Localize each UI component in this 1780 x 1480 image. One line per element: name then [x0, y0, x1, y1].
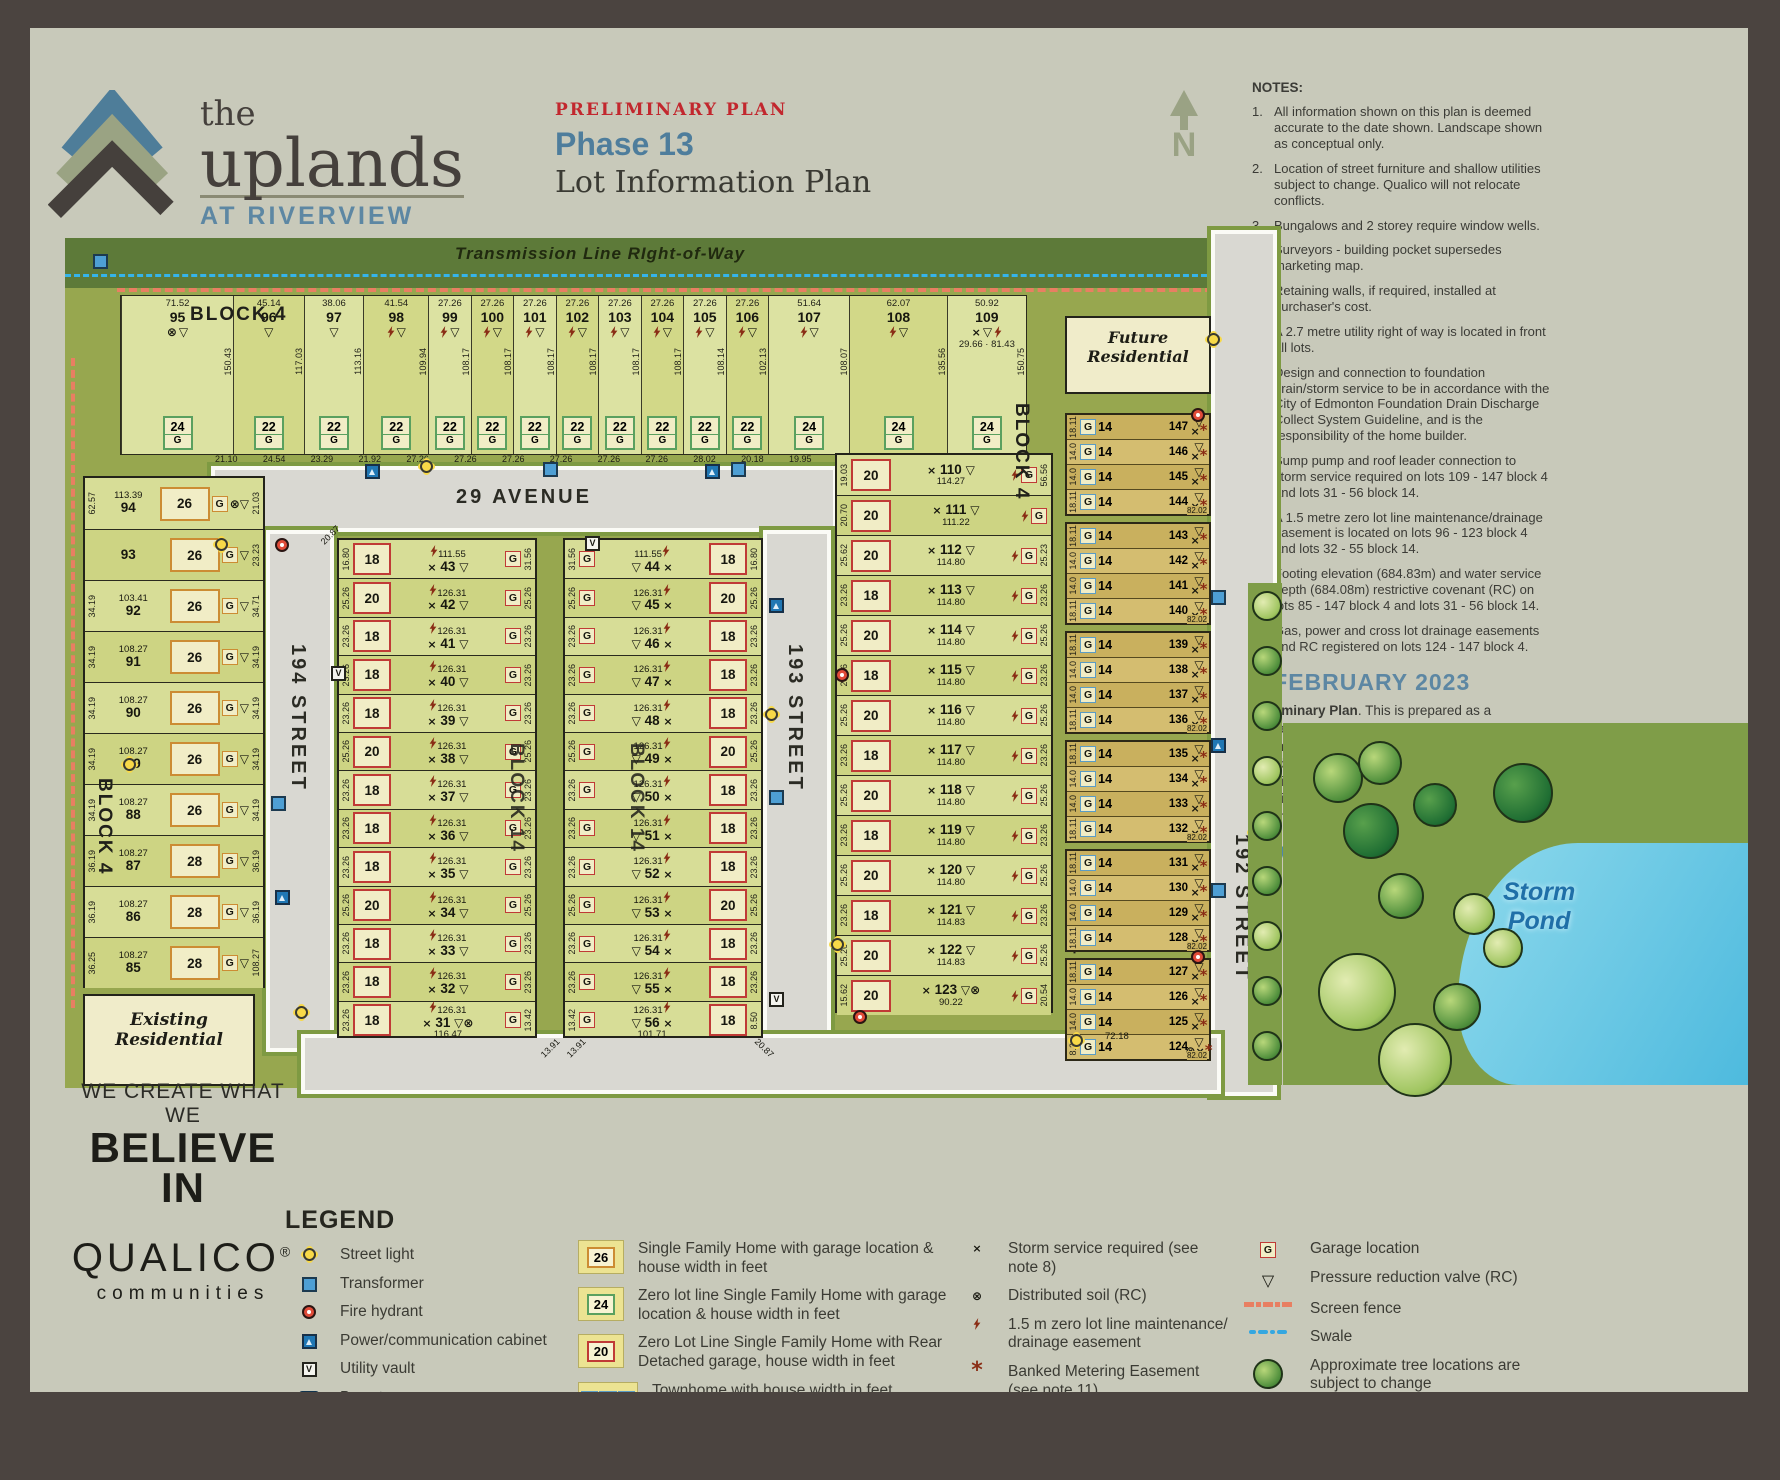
banked-metering-easement-icon: *	[1200, 530, 1208, 548]
arc-dimension: 27.26	[645, 454, 668, 464]
storm-service-icon: ×	[427, 715, 436, 728]
lot-141: 14.0G14141▽×*	[1067, 573, 1209, 598]
lot-depth-dim: 114.80	[893, 798, 1009, 808]
lot-dimension: 23.26	[341, 817, 351, 840]
lot-number: 140	[1169, 605, 1188, 617]
house-width: 14	[1098, 881, 1112, 895]
lot-dimension: 23.26	[341, 932, 351, 955]
legend-label: Swale	[1310, 1328, 1352, 1347]
lot-number: 44	[645, 559, 660, 574]
banked-metering-easement-icon: *	[1200, 471, 1208, 489]
lot-number: 118	[940, 782, 962, 797]
lot-54: 23.26G126.31▽ 54 ×1823.26	[565, 924, 761, 962]
zero-lot-line-easement-icon	[663, 584, 671, 596]
lot-dimension: 23.26	[567, 971, 577, 994]
house-footprint: 20	[851, 700, 891, 732]
lot-dimension: 14.0	[1068, 770, 1078, 788]
lot-depth-dim: 108.17	[588, 348, 598, 376]
lot-42: 25.2620126.31× 42 ▽G25.26	[339, 578, 535, 616]
lot-number: 92	[99, 604, 168, 618]
storm-service-icon: ×	[1190, 861, 1199, 874]
lot-depth-dim: 114.80	[893, 718, 1009, 728]
legend-item: Approximate tree locations are subject t…	[1240, 1357, 1540, 1392]
house-footprint: 20	[851, 980, 891, 1012]
power-cabinet-icon	[1211, 738, 1226, 753]
lot-86: 36.19108.278628G▽36.19	[85, 886, 263, 937]
lot-depth-dim: 108.17	[546, 348, 556, 376]
storm-service-icon: ×	[427, 945, 436, 958]
garage-location-box: G	[1021, 868, 1037, 884]
storm-service-icon: ×	[663, 715, 672, 728]
house-width: 14	[1098, 856, 1112, 870]
lot-dimension: 25.26	[839, 784, 849, 807]
lot-dimension: 25.26	[567, 587, 577, 610]
street-light-icon	[1070, 1034, 1083, 1047]
lot-number: 33	[440, 943, 455, 958]
house-footprint: 20	[851, 780, 891, 812]
house-swatch: 26	[578, 1240, 624, 1274]
block14-label-west: BLOCK 14	[505, 743, 527, 853]
lot-dimension: 18.11	[1068, 852, 1078, 874]
house-swatch: 24	[578, 1287, 624, 1321]
lot-number: 42	[440, 597, 455, 612]
lot-dimension: 23.26	[749, 779, 759, 802]
storm-service-icon: ×	[663, 868, 672, 881]
lot-dimension: 21.03	[251, 492, 261, 515]
zero-lot-line-easement-icon	[994, 326, 1002, 338]
house-footprint: 28	[170, 946, 220, 980]
lot-125: 14.0G14125▽×*	[1067, 1009, 1209, 1034]
qualico-brand: QUALICO	[72, 1236, 280, 1280]
pressure-reduction-valve-icon: ▽	[966, 703, 975, 717]
banked-metering-easement-icon: *	[1200, 664, 1208, 682]
legend-label: Townhome with house width in feet	[652, 1382, 892, 1392]
pressure-reduction-valve-icon: ▽	[966, 543, 975, 557]
zero-lot-line-easement-icon	[663, 814, 671, 826]
lot-dimension: 23.26	[1039, 904, 1049, 927]
distributed-soil-icon: ⊗	[230, 497, 240, 511]
lot-dimension: 15.62	[839, 984, 849, 1007]
existing-residential-area: Existing Residential	[83, 994, 255, 1086]
storm-service-icon: ×	[1190, 534, 1199, 547]
lot-dimension: 25.26	[839, 624, 849, 647]
house-footprint: 28	[170, 895, 220, 929]
legend-item: 20Zero Lot Line Single Family Home with …	[578, 1334, 958, 1371]
house-width: 14	[1098, 638, 1112, 652]
lot-number: 136	[1169, 714, 1188, 726]
street-light-icon	[123, 758, 136, 771]
lot-dimension: 14.0	[1068, 577, 1078, 595]
zero-lot-line-easement-icon	[1011, 550, 1019, 562]
fire-hydrant-icon	[275, 538, 289, 552]
garage-location-box: G	[1021, 908, 1037, 924]
north-letter: N	[1170, 130, 1198, 161]
pressure-reduction-valve-icon: ▽	[459, 829, 468, 843]
note-number: 3.	[1252, 218, 1274, 234]
tree-icon	[1378, 1023, 1452, 1097]
pressure-reduction-valve-icon: ▽	[450, 325, 459, 339]
townhome-bottom-dimension: 72.18	[1105, 1031, 1129, 1042]
house-width: 14	[1098, 495, 1112, 509]
garage-location-box: G	[1021, 828, 1037, 844]
pressure-reduction-valve-icon: ▽	[459, 867, 468, 881]
transformer-icon	[1211, 883, 1226, 898]
building-length-dim: 82.02	[1187, 615, 1207, 624]
lot-138: 14.0G14138▽×*	[1067, 657, 1209, 682]
zero-lot-line-easement-icon	[973, 1318, 981, 1330]
legend-heading: LEGEND	[285, 1206, 395, 1235]
utility-vault-icon: V	[585, 536, 600, 551]
legend-item: Screen fence	[1240, 1300, 1540, 1319]
garage-location-box: G	[579, 705, 595, 721]
garage-location-box: G	[1080, 553, 1096, 569]
lot-width-dim: 27.26	[608, 298, 632, 309]
house-footprint: 20	[353, 889, 391, 921]
lot-dimension: 23.26	[749, 856, 759, 879]
lot-depth-dim: 108.07	[839, 348, 849, 376]
garage-location-box: G	[1080, 821, 1096, 837]
garage-location-box: G	[522, 434, 548, 446]
garage-location-box: G	[579, 667, 595, 683]
arc-dimension: 24.54	[263, 454, 286, 464]
lot-dimension: 23.26	[341, 625, 351, 648]
lot-130: 14.0G14130▽×*	[1067, 875, 1209, 900]
lot-depth-dim: 108.17	[461, 348, 471, 376]
storm-service-icon: ×	[1190, 450, 1199, 463]
legend-label: Distributed soil (RC)	[1008, 1287, 1147, 1306]
garage-location-box: G	[579, 1012, 595, 1028]
banked-metering-easement-icon: *	[1200, 446, 1208, 464]
lot-dimension: 23.26	[567, 779, 577, 802]
storm-service-icon: ×	[1190, 1020, 1199, 1033]
lot-145: 14.0G14145▽×*	[1067, 464, 1209, 489]
house-width: 14	[1098, 906, 1112, 920]
pressure-reduction-valve-icon: ▽	[705, 325, 714, 339]
lot-120: 25.2620× 120 ▽114.80G25.26	[837, 855, 1051, 895]
lot-139: 18.11G14139▽×*	[1067, 633, 1209, 657]
house-footprint: 24G	[794, 416, 824, 450]
road-29-avenue: 29 AVENUE	[215, 470, 833, 528]
house-footprint: 22G	[319, 416, 349, 450]
pressure-reduction-valve-icon: ▽	[966, 863, 975, 877]
street-label-29-avenue: 29 AVENUE	[215, 486, 833, 509]
lot-number: 36	[440, 828, 455, 843]
zero-lot-line-easement-icon	[1011, 590, 1019, 602]
pressure-reduction-valve-icon: ▽	[966, 583, 975, 597]
legend-item: Power/communication cabinet	[292, 1332, 582, 1351]
note-text: Design and connection to foundation drai…	[1274, 365, 1552, 444]
pressure-reduction-valve-icon: ▽	[966, 623, 975, 637]
house-footprint: 18	[353, 851, 391, 883]
storm-service-icon: ×	[932, 504, 941, 517]
arc-dimension: 27.26	[502, 454, 525, 464]
house-width: 14	[1098, 713, 1112, 727]
house-width: 14	[1098, 747, 1112, 761]
lot-depth-dim: 114.80	[893, 558, 1009, 568]
transmission-line-label: Transmission Line RIght-of-Way	[455, 244, 745, 264]
block14-east: 31.56G111.55▽ 44 ×1816.8025.26G126.31▽ 4…	[563, 538, 763, 1038]
zero-lot-line-easement-icon	[663, 929, 671, 941]
phase-title: Phase 13	[555, 126, 871, 163]
storm-service-icon: ×	[927, 904, 936, 917]
lot-dimension: 18.11	[1068, 743, 1078, 765]
lot-dimension: 25.26	[523, 894, 533, 917]
lot-number: 131	[1169, 857, 1188, 869]
banked-metering-easement-icon: *	[1200, 773, 1208, 791]
lot-dimension: 18.11	[1068, 927, 1078, 949]
zero-lot-line-easement-icon	[695, 326, 703, 338]
storm-service-icon: ×	[1190, 643, 1199, 656]
lot-number: 123	[935, 982, 958, 997]
banked-metering-easement-icon: *	[1200, 421, 1208, 439]
zero-lot-line-easement-icon	[663, 699, 671, 711]
lot-dimension: 25.26	[839, 704, 849, 727]
pressure-reduction-valve-icon: ▽	[493, 325, 502, 339]
garage-location-box: G	[1080, 603, 1096, 619]
storm-service-icon: ×	[427, 638, 436, 651]
garage-location-box: G	[1080, 712, 1096, 728]
lot-dimension: 25.26	[1039, 784, 1049, 807]
lot-122: 25.2620× 122 ▽114.83G25.26	[837, 935, 1051, 975]
lot-dimension: 13.42	[523, 1009, 533, 1032]
tree-icon	[1252, 756, 1282, 786]
house-footprint: 24G	[163, 416, 193, 450]
townhome-building: 18.11G14135▽×*14.0G14134▽×*14.0G14133▽×*…	[1065, 740, 1211, 843]
storm-service-icon: ×	[663, 638, 672, 651]
lot-97: 38.0697▽113.1622G	[304, 296, 364, 454]
garage-location-box: G	[579, 859, 595, 875]
banked-metering-easement-icon: *	[971, 1365, 983, 1376]
fire-hydrant-icon	[835, 668, 849, 682]
garage-location-box: G	[579, 936, 595, 952]
lot-dimension: 25.26	[341, 740, 351, 763]
legend-label: Utility vault	[340, 1360, 415, 1379]
lot-depth-dim: 114.80	[893, 598, 1009, 608]
legend-item: 26Single Family Home with garage locatio…	[578, 1240, 958, 1277]
house-footprint: 22G	[605, 416, 635, 450]
storm-service-icon: ×	[427, 983, 436, 996]
zero-lot-line-easement-icon	[1011, 990, 1019, 1002]
lot-number: 137	[1169, 689, 1188, 701]
house-width: 14	[1098, 1040, 1112, 1054]
house-footprint: 18	[353, 543, 391, 575]
plan-panel: the uplands AT RIVERVIEW PRELIMINARY PLA…	[30, 28, 1748, 1392]
tree-icon	[1358, 741, 1402, 785]
house-width: 14	[1098, 1015, 1112, 1029]
legend-item: ×Storm service required (see note 8)	[960, 1240, 1230, 1277]
lot-number: 38	[440, 751, 455, 766]
storm-service-icon: ×	[663, 983, 672, 996]
storm-service-icon: ×	[1190, 777, 1199, 790]
block4-label-west: BLOCK 4	[93, 778, 115, 875]
house-width: 14	[1098, 554, 1112, 568]
house-footprint: 26	[170, 640, 220, 674]
lot-dimension: 23.26	[523, 932, 533, 955]
lot-dimension: 16.80	[749, 548, 759, 571]
legend-item: Swale	[1240, 1328, 1540, 1347]
transformer-icon	[731, 462, 746, 477]
north-arrow-head	[1170, 90, 1198, 116]
storm-service-icon: ×	[427, 907, 436, 920]
lot-dimension: 25.26	[749, 894, 759, 917]
lot-34: 25.2620126.31× 34 ▽G25.26	[339, 886, 535, 924]
lot-90: 34.19108.279026G▽34.19	[85, 682, 263, 733]
block14-label-east: BLOCK 14	[625, 743, 647, 853]
arc-dimension: 28.02	[693, 454, 716, 464]
note-item: 1.All information shown on this plan is …	[1252, 104, 1552, 152]
house-footprint: 20	[709, 582, 747, 614]
banked-metering-easement-icon: *	[1200, 991, 1208, 1009]
pressure-reduction-valve-icon: ▽	[459, 790, 468, 804]
pressure-reduction-valve-icon: ▽	[240, 905, 249, 919]
arc-dimension: 27.26	[454, 454, 477, 464]
legend-item: GGarage location	[1240, 1240, 1540, 1259]
storm-service-icon: ×	[922, 984, 931, 997]
lot-33: 23.2618126.31× 33 ▽G23.26	[339, 924, 535, 962]
zero-lot-line-easement-icon	[889, 326, 897, 338]
block4-label-east-top: BLOCK 4	[1010, 403, 1032, 500]
arc-dimension: 23.29	[311, 454, 334, 464]
lot-number: 37	[440, 789, 455, 804]
plan-type-label: PRELIMINARY PLAN	[555, 100, 871, 120]
pressure-reduction-valve-icon: ▽	[535, 325, 544, 339]
lot-dimension: 23.26	[839, 744, 849, 767]
garage-location-box: G	[222, 700, 238, 716]
lot-dimension: 23.26	[567, 664, 577, 687]
note-text: Footing elevation (684.83m) and water se…	[1274, 566, 1552, 614]
house-footprint: 20	[851, 620, 891, 652]
lot-dimension: 31.56	[523, 548, 533, 571]
lot-number: 134	[1169, 773, 1188, 785]
screen-fence-line	[117, 288, 1225, 292]
lot-dimension: 25.26	[567, 894, 577, 917]
garage-location-box: G	[165, 434, 191, 446]
garage-location-box: G	[579, 628, 595, 644]
house-footprint: 22G	[254, 416, 284, 450]
storm-service-icon: ×	[1190, 584, 1199, 597]
house-footprint: 26	[170, 691, 220, 725]
house-footprint: 20	[709, 736, 747, 768]
pressure-reduction-valve-icon: ▽	[240, 803, 249, 817]
storm-service-icon: ×	[927, 744, 936, 757]
power-cabinet-icon	[302, 1334, 317, 1349]
tree-icon	[1413, 783, 1457, 827]
lot-dimension: 34.19	[251, 697, 261, 720]
lot-147: 18.11G14147▽×*	[1067, 415, 1209, 439]
pressure-reduction-valve-icon: ▽	[899, 325, 908, 339]
pressure-reduction-valve-icon: ▽	[1262, 1271, 1274, 1290]
lot-width-dim: 27.26	[565, 298, 589, 309]
zero-lot-line-easement-icon	[1011, 910, 1019, 922]
lot-number: 32	[440, 981, 455, 996]
lot-number: 40	[440, 674, 455, 689]
tree-icon	[1252, 921, 1282, 951]
house-footprint: 18	[709, 620, 747, 652]
storm-service-icon: ×	[663, 791, 672, 804]
zero-lot-line-easement-icon	[1021, 510, 1029, 522]
tree-icon	[1252, 866, 1282, 896]
pressure-reduction-valve-icon: ▽	[632, 637, 641, 651]
lot-dimension: 23.26	[567, 702, 577, 725]
lot-46: 23.26G126.31▽ 46 ×1823.26	[565, 617, 761, 655]
building-length-dim: 82.02	[1187, 724, 1207, 733]
lot-dimension: 23.26	[523, 856, 533, 879]
lot-45: 25.26G126.31▽ 45 ×2025.26	[565, 578, 761, 616]
pressure-reduction-valve-icon: ▽	[748, 325, 757, 339]
garage-location-box: G	[1080, 855, 1096, 871]
lot-width-dim: 27.26	[735, 298, 759, 309]
legend-item: Transformer	[292, 1275, 582, 1294]
storm-service-icon: ×	[927, 584, 936, 597]
legend-label: Garage location	[1310, 1240, 1419, 1259]
garage-location-box: G	[1021, 948, 1037, 964]
lot-dimension: 25.26	[341, 894, 351, 917]
lot-115: 23.2618× 115 ▽114.80G23.26	[837, 655, 1051, 695]
bus-stop-icon	[299, 1391, 319, 1392]
utility-vault-icon: V	[302, 1362, 317, 1377]
lot-127: 18.11G14127▽×*	[1067, 960, 1209, 984]
garage-location-box: G	[579, 551, 595, 567]
lot-56: 13.42G126.31▽ 56 ×101.71188.50	[565, 1001, 761, 1039]
lot-number: 120	[940, 862, 963, 877]
house-footprint: 18	[353, 1004, 391, 1036]
lot-dimension: 25.26	[1039, 864, 1049, 887]
lot-dimension: 23.26	[567, 625, 577, 648]
lot-dimension: 36.19	[87, 901, 97, 924]
pressure-reduction-valve-icon: ▽	[632, 598, 641, 612]
lot-dimension: 20.70	[839, 504, 849, 527]
lot-number: 48	[645, 713, 660, 728]
pressure-reduction-valve-icon: ▽	[966, 663, 975, 677]
house-width: 14	[1098, 990, 1112, 1004]
lot-dimension: 16.80	[341, 548, 351, 571]
lot-width-dim: 38.06	[322, 298, 346, 309]
pressure-reduction-valve-icon: ▽	[240, 956, 249, 970]
lot-dimension: 34.19	[87, 595, 97, 618]
screen-fence-icon	[1244, 1302, 1292, 1307]
lot-55: 23.26G126.31▽ 55 ×1823.26	[565, 962, 761, 1000]
garage-location-box: G	[1080, 419, 1096, 435]
legend-item: 24Zero lot line Single Family Home with …	[578, 1287, 958, 1324]
lot-105: 27.26105▽108.1422G	[683, 296, 726, 454]
lot-dimension: 25.23	[1039, 544, 1049, 567]
lot-dimension: 23.26	[1039, 744, 1049, 767]
logo-uplands: uplands	[200, 134, 464, 193]
existing-label-2: Residential	[85, 1030, 253, 1050]
arc-dimension: 27.26	[598, 454, 621, 464]
lot-number: 103	[608, 309, 631, 325]
lot-134: 14.0G14134▽×*	[1067, 766, 1209, 791]
storm-service-icon: ×	[1190, 559, 1199, 572]
garage-location-box: G	[579, 897, 595, 913]
legend-column-4: GGarage location▽Pressure reduction valv…	[1240, 1240, 1540, 1392]
zero-lot-line-easement-icon	[483, 326, 491, 338]
block4-east-column: 19.0320× 110 ▽114.27G56.5620.7020× 111 ▽…	[835, 453, 1053, 1013]
house-footprint: 22G	[381, 416, 411, 450]
lot-depth-dim: 114.80	[893, 758, 1009, 768]
transformer-icon	[302, 1277, 317, 1292]
garage-location-box: G	[1021, 588, 1037, 604]
lot-number: 144	[1169, 496, 1188, 508]
banked-metering-easement-icon: *	[1200, 882, 1208, 900]
lot-103: 27.26103▽108.1722G	[598, 296, 641, 454]
street-label-193: 193 STREET	[783, 644, 806, 792]
house-footprint: 18	[709, 697, 747, 729]
garage-location-box: G	[1021, 788, 1037, 804]
storm-service-icon: ×	[927, 864, 936, 877]
note-text: A 1.5 metre zero lot line maintenance/dr…	[1274, 510, 1552, 558]
garage-location-box: G	[579, 782, 595, 798]
